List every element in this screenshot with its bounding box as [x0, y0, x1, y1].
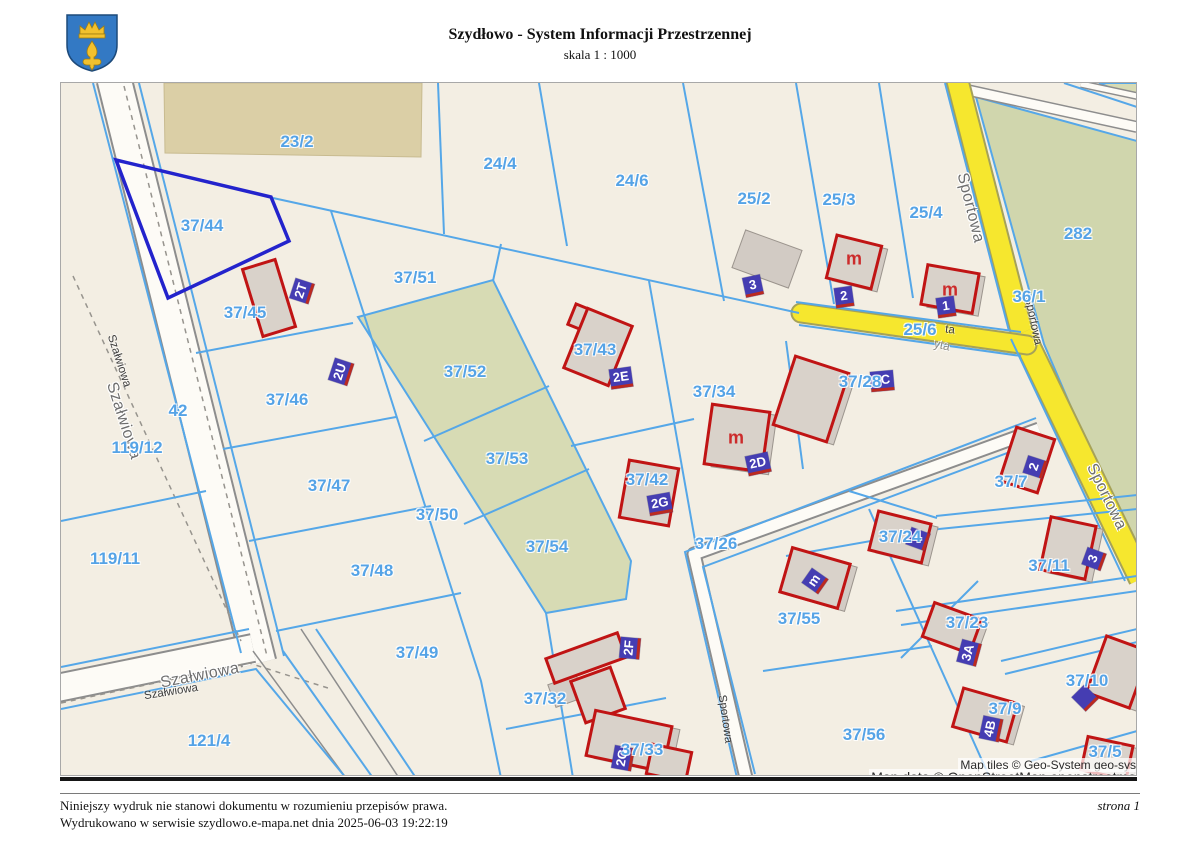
- street-name-label: Sportowa: [953, 171, 988, 245]
- building-m-marker: m: [942, 280, 958, 301]
- parcel-number-label: 37/48: [351, 561, 394, 581]
- parcel-number-label: 37/49: [396, 643, 439, 663]
- street-name-label: Sportowa: [716, 694, 735, 744]
- parcel-number-label: 25/6: [903, 320, 936, 340]
- building-address-label: 2D: [745, 452, 771, 476]
- building-address-label: 2G: [647, 492, 673, 516]
- map-bottom-border: [60, 777, 1137, 781]
- building-address-label: 3: [742, 274, 764, 297]
- parcel-number-label: 282: [1064, 224, 1092, 244]
- parcel-number-label: 37/34: [693, 382, 736, 402]
- parcel-number-label: 25/2: [737, 189, 770, 209]
- map-canvas[interactable]: 2T2U3212E2C2D2G233A4Bm2F2GmmmSzałwiowaSz…: [60, 82, 1137, 776]
- parcel-number-label: 25/3: [822, 190, 855, 210]
- parcel-number-label: 37/56: [843, 725, 886, 745]
- street-name-label: Szałwiowa: [143, 682, 199, 702]
- parcel-number-label: 37/7: [994, 472, 1027, 492]
- building-address-label: 2F: [619, 637, 641, 660]
- page-number: strona 1: [0, 798, 1140, 814]
- parcel-number-label: 37/43: [574, 340, 617, 360]
- building-address-label: 3: [1082, 547, 1107, 571]
- parcel-number-label: 37/50: [416, 505, 459, 525]
- parcel-number-label: 37/53: [486, 449, 529, 469]
- building-m-marker: m: [846, 249, 862, 270]
- parcel-number-label: 121/4: [188, 731, 231, 751]
- parcel-number-label: 36/1: [1012, 287, 1045, 307]
- parcel-number-label: 37/26: [695, 534, 738, 554]
- street-name-label: Sportowa: [1082, 461, 1130, 533]
- parcel-number-label: 119/11: [90, 549, 140, 569]
- building-m-marker: m: [728, 428, 744, 449]
- parcel-number-label: 37/55: [778, 609, 821, 629]
- parcel-number-label: 37/28: [839, 372, 882, 392]
- parcel-number-label: 37/32: [524, 689, 567, 709]
- header: Szydłowo - System Informacji Przestrzenn…: [0, 26, 1200, 63]
- map-label-layer: 2T2U3212E2C2D2G233A4Bm2F2GmmmSzałwiowaSz…: [60, 82, 1137, 776]
- parcel-number-label: 37/52: [444, 362, 487, 382]
- parcel-number-label: 37/54: [526, 537, 569, 557]
- map-layers: 2T2U3212E2C2D2G233A4Bm2F2GmmmSzałwiowaSz…: [60, 82, 1137, 776]
- parcel-number-label: 37/24: [879, 527, 922, 547]
- building-address-label: 2U: [328, 358, 354, 386]
- building-address-label: 4B: [979, 716, 1003, 742]
- parcel-number-label: 37/11: [1028, 556, 1070, 576]
- building-address-label: 3A: [956, 639, 981, 666]
- parcel-number-label: 37/42: [626, 470, 669, 490]
- parcel-number-label: 37/23: [946, 613, 989, 633]
- parcel-number-label: 37/10: [1066, 671, 1109, 691]
- parcel-number-label: 37/9: [988, 699, 1021, 719]
- building-address-label: 2E: [609, 367, 633, 390]
- print-info: Wydrukowano w serwisie szydlowo.e-mapa.n…: [60, 815, 448, 831]
- parcel-number-label: 24/4: [483, 154, 516, 174]
- building-address-label: 2T: [289, 278, 315, 304]
- parcel-number-label: 42: [169, 401, 188, 421]
- parcel-number-label: 37/44: [181, 216, 224, 236]
- parcel-number-label: 37/47: [308, 476, 351, 496]
- parcel-number-label: 23/2: [280, 132, 313, 152]
- building-address-label: m: [802, 568, 829, 594]
- parcel-number-label: 37/46: [266, 390, 309, 410]
- parcel-number-label: 25/4: [909, 203, 942, 223]
- parcel-number-label: 119/12: [111, 438, 162, 458]
- building-address-label: 2: [834, 286, 855, 308]
- print-page: Szydłowo - System Informacji Przestrzenn…: [0, 0, 1200, 848]
- page-title: Szydłowo - System Informacji Przestrzenn…: [0, 26, 1200, 44]
- parcel-number-label: 24/6: [615, 171, 648, 191]
- map-data-attribution: Map data © OpenStreetMap openstreetma: [869, 769, 1137, 776]
- parcel-number-label: 37/33: [621, 740, 664, 760]
- map-scale-label: skala 1 : 1000: [0, 47, 1200, 63]
- street-name-label: ta: [945, 324, 956, 337]
- parcel-number-label: 37/51: [394, 268, 437, 288]
- footer-divider: [60, 793, 1140, 794]
- parcel-number-label: 37/45: [224, 303, 267, 323]
